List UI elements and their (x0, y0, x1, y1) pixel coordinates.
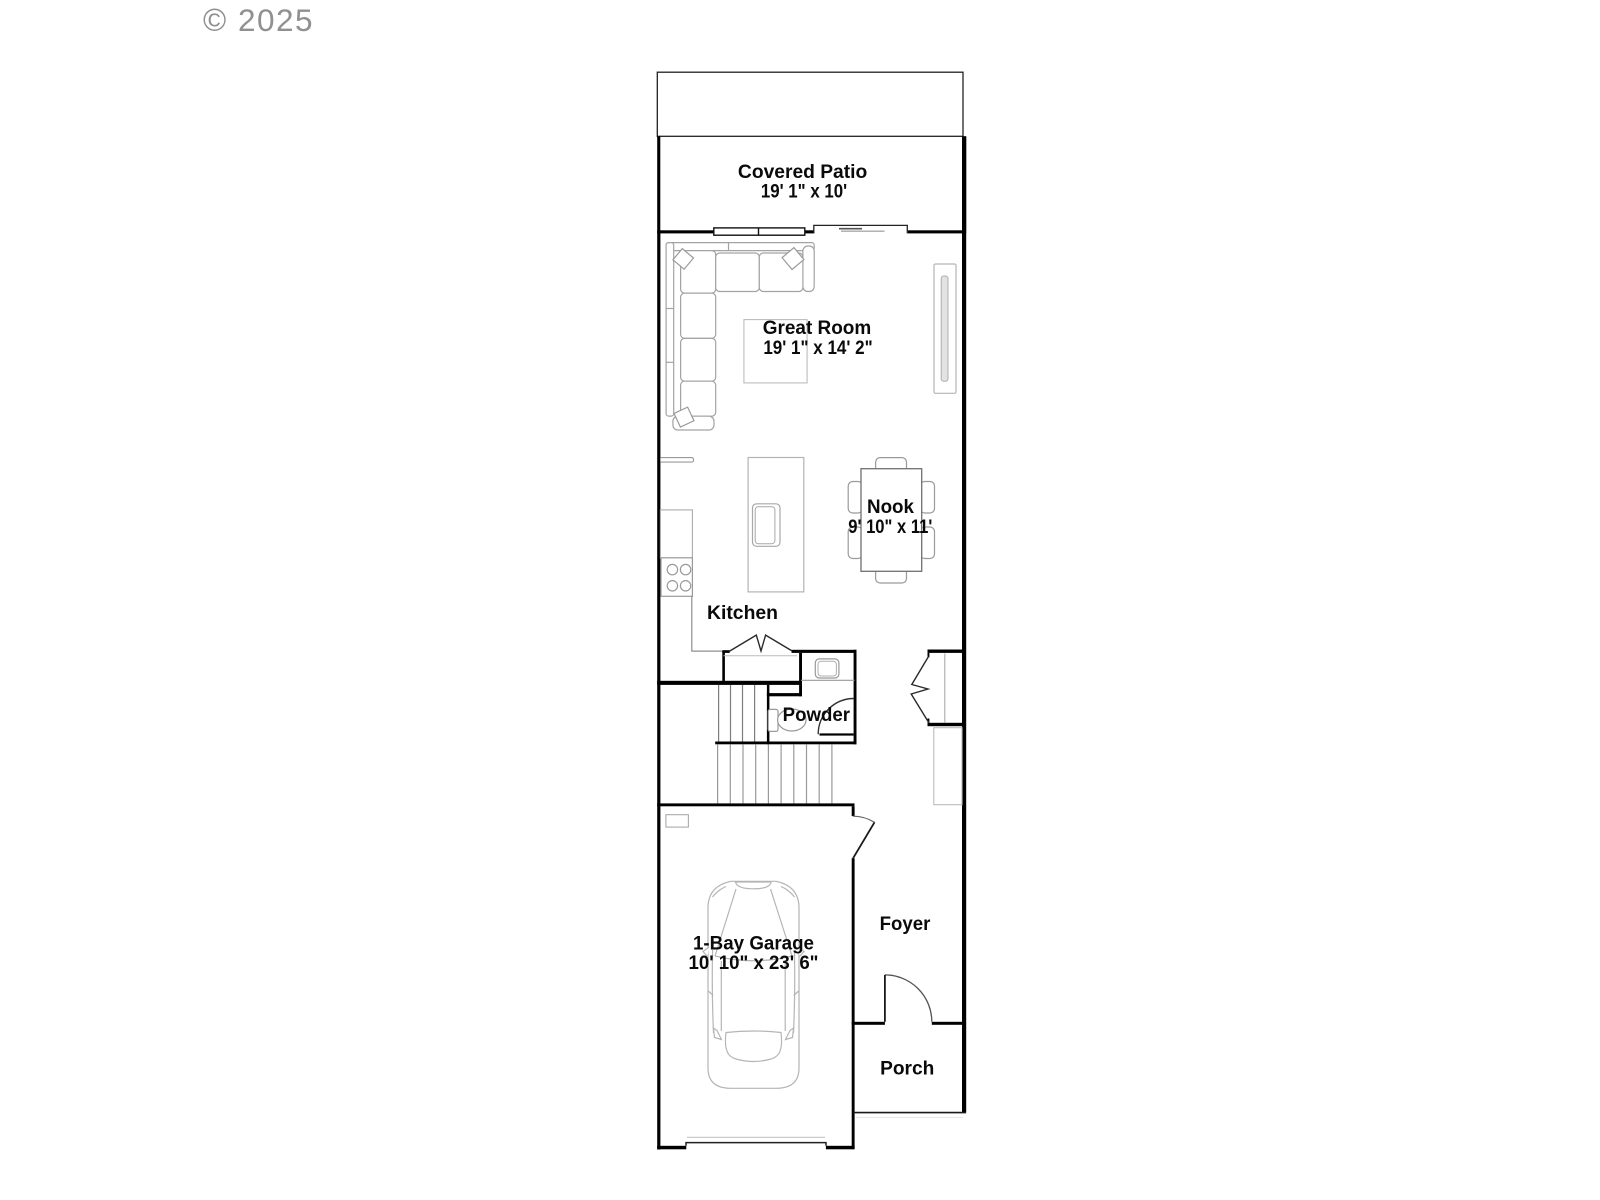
svg-text:19' 1" x 10': 19' 1" x 10' (761, 182, 847, 203)
svg-text:19' 1" x 14' 2": 19' 1" x 14' 2" (763, 338, 872, 359)
svg-text:Porch: Porch (880, 1059, 934, 1080)
svg-text:Kitchen: Kitchen (707, 603, 778, 624)
svg-text:Powder: Powder (783, 705, 851, 726)
svg-text:Nook: Nook (867, 497, 914, 518)
svg-text:Great Room: Great Room (763, 318, 872, 339)
svg-text:9' 10" x 11': 9' 10" x 11' (848, 517, 932, 538)
svg-text:© 2025: © 2025 (203, 2, 314, 38)
svg-text:10' 10" x 23' 6": 10' 10" x 23' 6" (689, 953, 819, 974)
svg-text:Covered Patio: Covered Patio (738, 162, 867, 183)
svg-text:Foyer: Foyer (880, 914, 931, 935)
svg-text:1-Bay Garage: 1-Bay Garage (693, 933, 814, 954)
